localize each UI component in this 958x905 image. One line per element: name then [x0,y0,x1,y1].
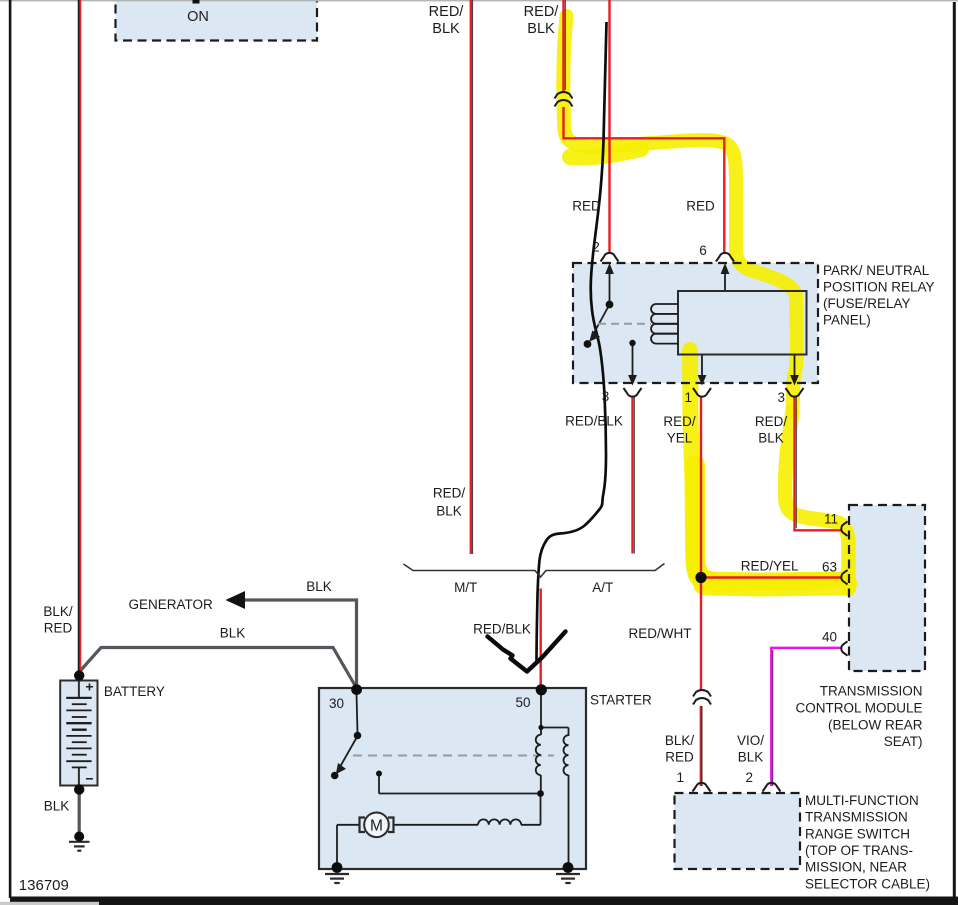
svg-text:50: 50 [515,695,530,710]
svg-text:BATTERY: BATTERY [104,684,165,699]
svg-text:3: 3 [602,389,610,404]
svg-text:MISSION, NEAR: MISSION, NEAR [805,860,907,875]
svg-text:RED: RED [572,199,601,214]
svg-text:BLK: BLK [220,626,246,641]
svg-text:1: 1 [677,770,685,785]
svg-text:BLK: BLK [758,431,784,446]
svg-text:40: 40 [822,629,837,644]
svg-text:PANEL): PANEL) [823,313,871,328]
svg-text:63: 63 [822,559,837,574]
svg-text:RED: RED [665,750,694,765]
svg-text:RED/BLK: RED/BLK [565,414,623,429]
svg-text:BLK/: BLK/ [665,733,695,748]
svg-text:POSITION RELAY: POSITION RELAY [823,280,935,295]
svg-text:(FUSE/RELAY: (FUSE/RELAY [823,296,911,311]
svg-text:CONTROL MODULE: CONTROL MODULE [795,701,922,716]
svg-text:STARTER: STARTER [590,693,652,708]
svg-text:ON: ON [187,9,209,25]
svg-text:2: 2 [592,240,600,255]
svg-text:2: 2 [746,770,754,785]
svg-text:RED/: RED/ [429,4,465,20]
svg-text:3: 3 [777,390,785,405]
svg-text:PARK/ NEUTRAL: PARK/ NEUTRAL [823,263,930,278]
svg-text:SEAT): SEAT) [884,734,923,749]
svg-text:RED/WHT: RED/WHT [629,626,692,641]
svg-text:11: 11 [824,512,838,527]
svg-text:BLK: BLK [436,504,462,519]
svg-text:RED: RED [44,621,73,636]
svg-text:A/T: A/T [592,580,613,595]
svg-text:BLK: BLK [432,21,460,37]
svg-text:MULTI-FUNCTION: MULTI-FUNCTION [805,793,919,808]
svg-text:−: − [85,771,93,787]
svg-text:30: 30 [329,696,344,711]
svg-text:RED/: RED/ [433,486,466,501]
svg-text:+: + [85,679,93,695]
svg-text:TRANSMISSION: TRANSMISSION [805,810,908,825]
svg-text:M: M [370,818,383,835]
svg-text:BLK: BLK [44,799,70,814]
svg-text:BLK: BLK [527,21,555,37]
svg-text:SELECTOR CABLE): SELECTOR CABLE) [805,876,930,891]
svg-text:(TOP OF TRANS-: (TOP OF TRANS- [805,843,913,858]
svg-text:M/T: M/T [454,580,477,595]
svg-text:RED/YEL: RED/YEL [741,559,799,574]
svg-text:GENERATOR: GENERATOR [129,597,214,612]
svg-text:RED/: RED/ [524,4,560,20]
svg-text:RANGE SWITCH: RANGE SWITCH [805,826,910,841]
svg-text:1: 1 [684,390,692,405]
svg-text:BLK/: BLK/ [43,604,73,619]
svg-text:TRANSMISSION: TRANSMISSION [820,684,923,699]
svg-text:136709: 136709 [19,877,69,894]
svg-text:RED/: RED/ [755,414,788,429]
svg-text:YEL: YEL [667,431,693,446]
svg-text:BLK: BLK [306,579,332,594]
svg-text:VIO/: VIO/ [737,733,764,748]
svg-text:(BELOW REAR: (BELOW REAR [828,718,923,733]
svg-text:RED: RED [686,199,715,214]
svg-text:RED/: RED/ [663,414,696,429]
svg-text:6: 6 [699,243,707,258]
svg-text:BLK: BLK [738,750,764,765]
svg-text:RED/BLK: RED/BLK [473,622,531,637]
